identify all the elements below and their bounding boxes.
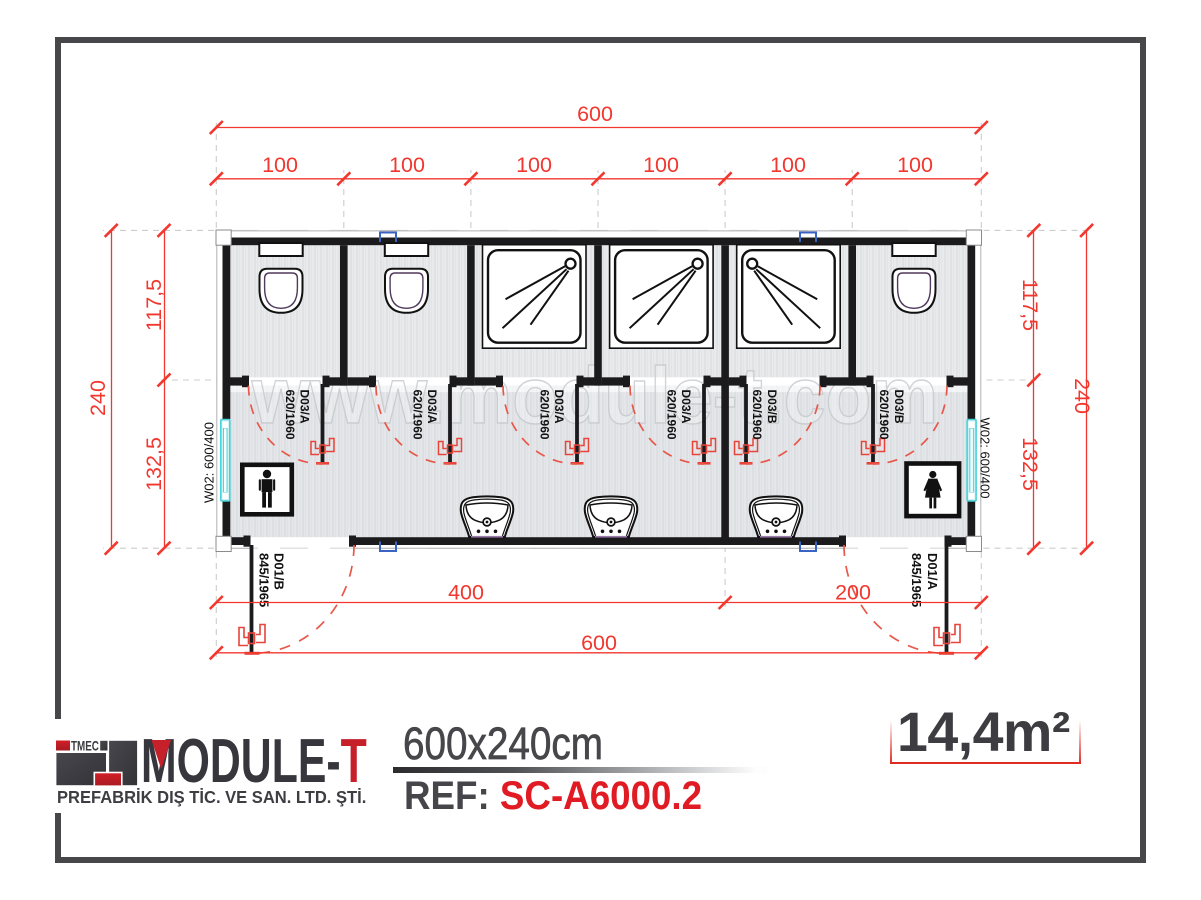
svg-text:132,5: 132,5 bbox=[1018, 437, 1042, 491]
svg-text:620/1960: 620/1960 bbox=[750, 390, 764, 440]
svg-text:D03/A: D03/A bbox=[298, 390, 312, 424]
svg-text:600: 600 bbox=[581, 631, 617, 655]
svg-text:D03/A: D03/A bbox=[679, 390, 693, 424]
svg-text:D01/A: D01/A bbox=[925, 553, 940, 590]
svg-text:620/1960: 620/1960 bbox=[411, 390, 425, 440]
svg-text:620/1960: 620/1960 bbox=[538, 390, 552, 440]
svg-text:D01/B: D01/B bbox=[272, 553, 287, 590]
svg-text:600: 600 bbox=[577, 102, 613, 126]
svg-text:845/1965: 845/1965 bbox=[909, 553, 924, 607]
svg-text:D03/B: D03/B bbox=[892, 390, 906, 424]
svg-text:620/1960: 620/1960 bbox=[665, 390, 679, 440]
svg-text:620/1960: 620/1960 bbox=[283, 390, 297, 440]
svg-text:240: 240 bbox=[1070, 378, 1094, 414]
svg-text:100: 100 bbox=[770, 153, 806, 177]
svg-text:117,5: 117,5 bbox=[1018, 279, 1042, 331]
svg-text:D03/A: D03/A bbox=[425, 390, 439, 424]
svg-text:400: 400 bbox=[448, 581, 484, 605]
svg-text:100: 100 bbox=[262, 153, 298, 177]
svg-text:W02: 600/400: W02: 600/400 bbox=[978, 418, 993, 499]
svg-text:100: 100 bbox=[897, 153, 933, 177]
svg-text:TMEC: TMEC bbox=[71, 738, 99, 754]
svg-text:117,5: 117,5 bbox=[142, 279, 166, 331]
svg-text:100: 100 bbox=[643, 153, 679, 177]
svg-text:D03/B: D03/B bbox=[765, 390, 779, 424]
svg-text:100: 100 bbox=[389, 153, 425, 177]
svg-text:845/1965: 845/1965 bbox=[257, 553, 272, 607]
svg-text:240: 240 bbox=[86, 380, 110, 416]
svg-text:200: 200 bbox=[835, 581, 871, 605]
svg-text:620/1960: 620/1960 bbox=[877, 390, 891, 440]
svg-text:100: 100 bbox=[516, 153, 552, 177]
svg-text:W02: 600/400: W02: 600/400 bbox=[202, 422, 217, 503]
svg-text:D03/A: D03/A bbox=[552, 390, 566, 424]
svg-text:132,5: 132,5 bbox=[142, 437, 166, 491]
